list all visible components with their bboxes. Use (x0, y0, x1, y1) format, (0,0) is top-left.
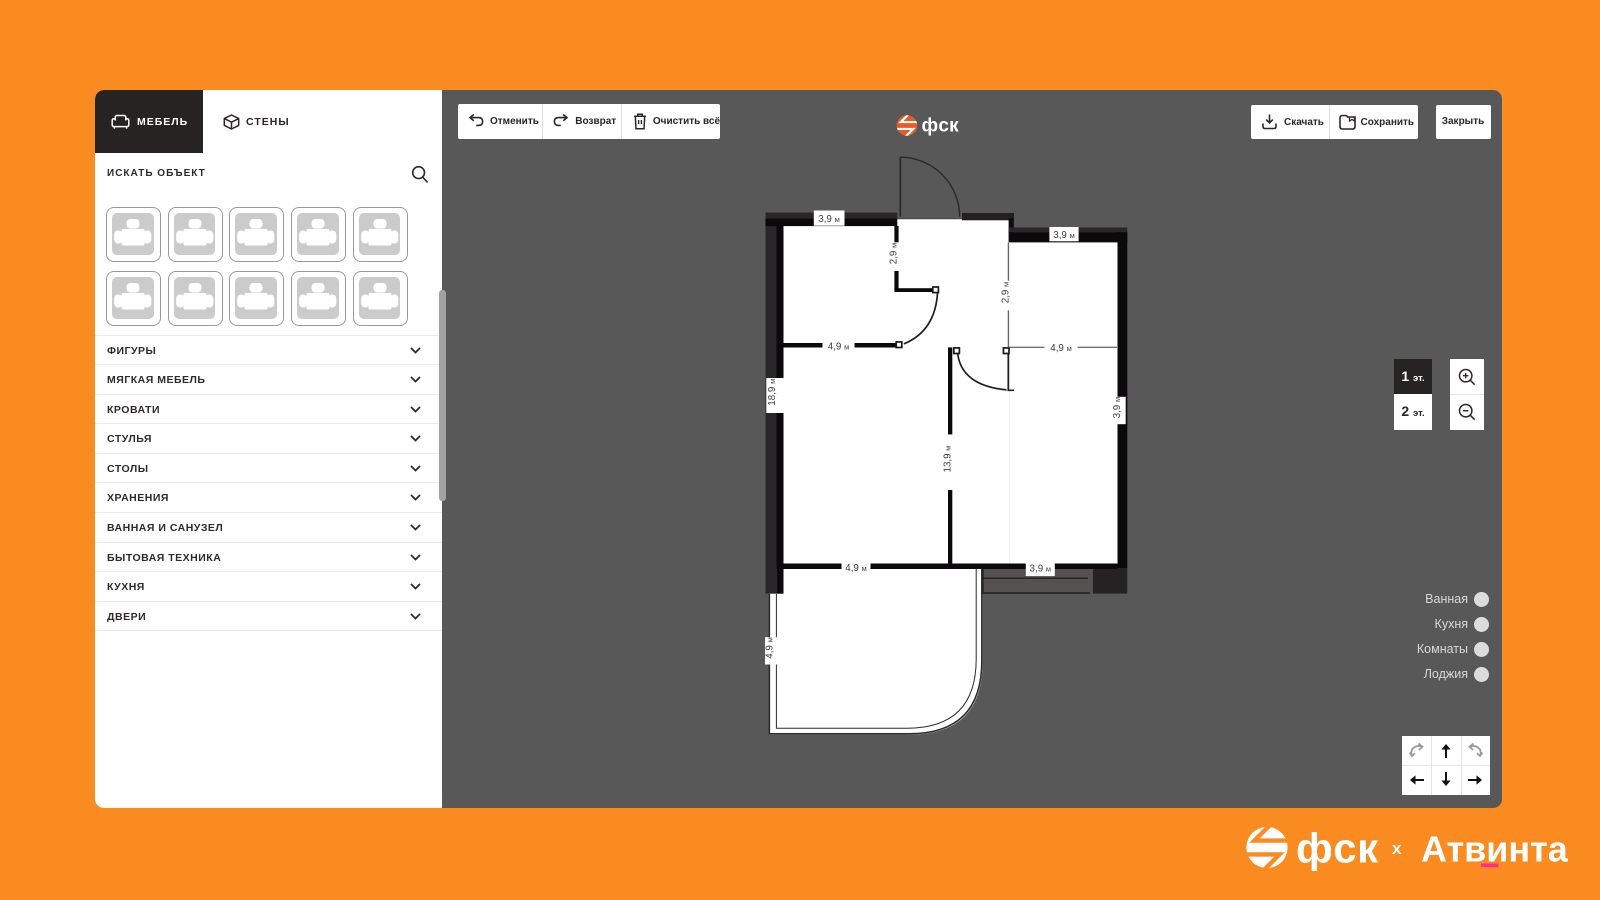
svg-text:4,9 м: 4,9 м (828, 342, 850, 353)
svg-text:13,9 м: 13,9 м (942, 446, 953, 473)
svg-text:3,9 м: 3,9 м (818, 214, 840, 225)
svg-text:х: х (1392, 839, 1402, 858)
svg-text:3,9 м: 3,9 м (1112, 397, 1123, 419)
svg-text:4,9 м: 4,9 м (1050, 343, 1072, 354)
svg-text:4,9 м: 4,9 м (845, 563, 867, 574)
svg-text:фск: фск (922, 116, 960, 137)
svg-text:18,9 м: 18,9 м (767, 379, 778, 406)
svg-text:Атвинта: Атвинта (1421, 829, 1569, 870)
svg-text:3,9 м: 3,9 м (1030, 564, 1052, 575)
svg-text:4,9 м: 4,9 м (764, 637, 775, 659)
svg-text:2,9 м: 2,9 м (889, 243, 900, 265)
svg-text:2,9 м: 2,9 м (1000, 282, 1011, 304)
svg-text:3,9 м: 3,9 м (1053, 230, 1075, 241)
svg-text:фск: фск (1296, 825, 1379, 872)
